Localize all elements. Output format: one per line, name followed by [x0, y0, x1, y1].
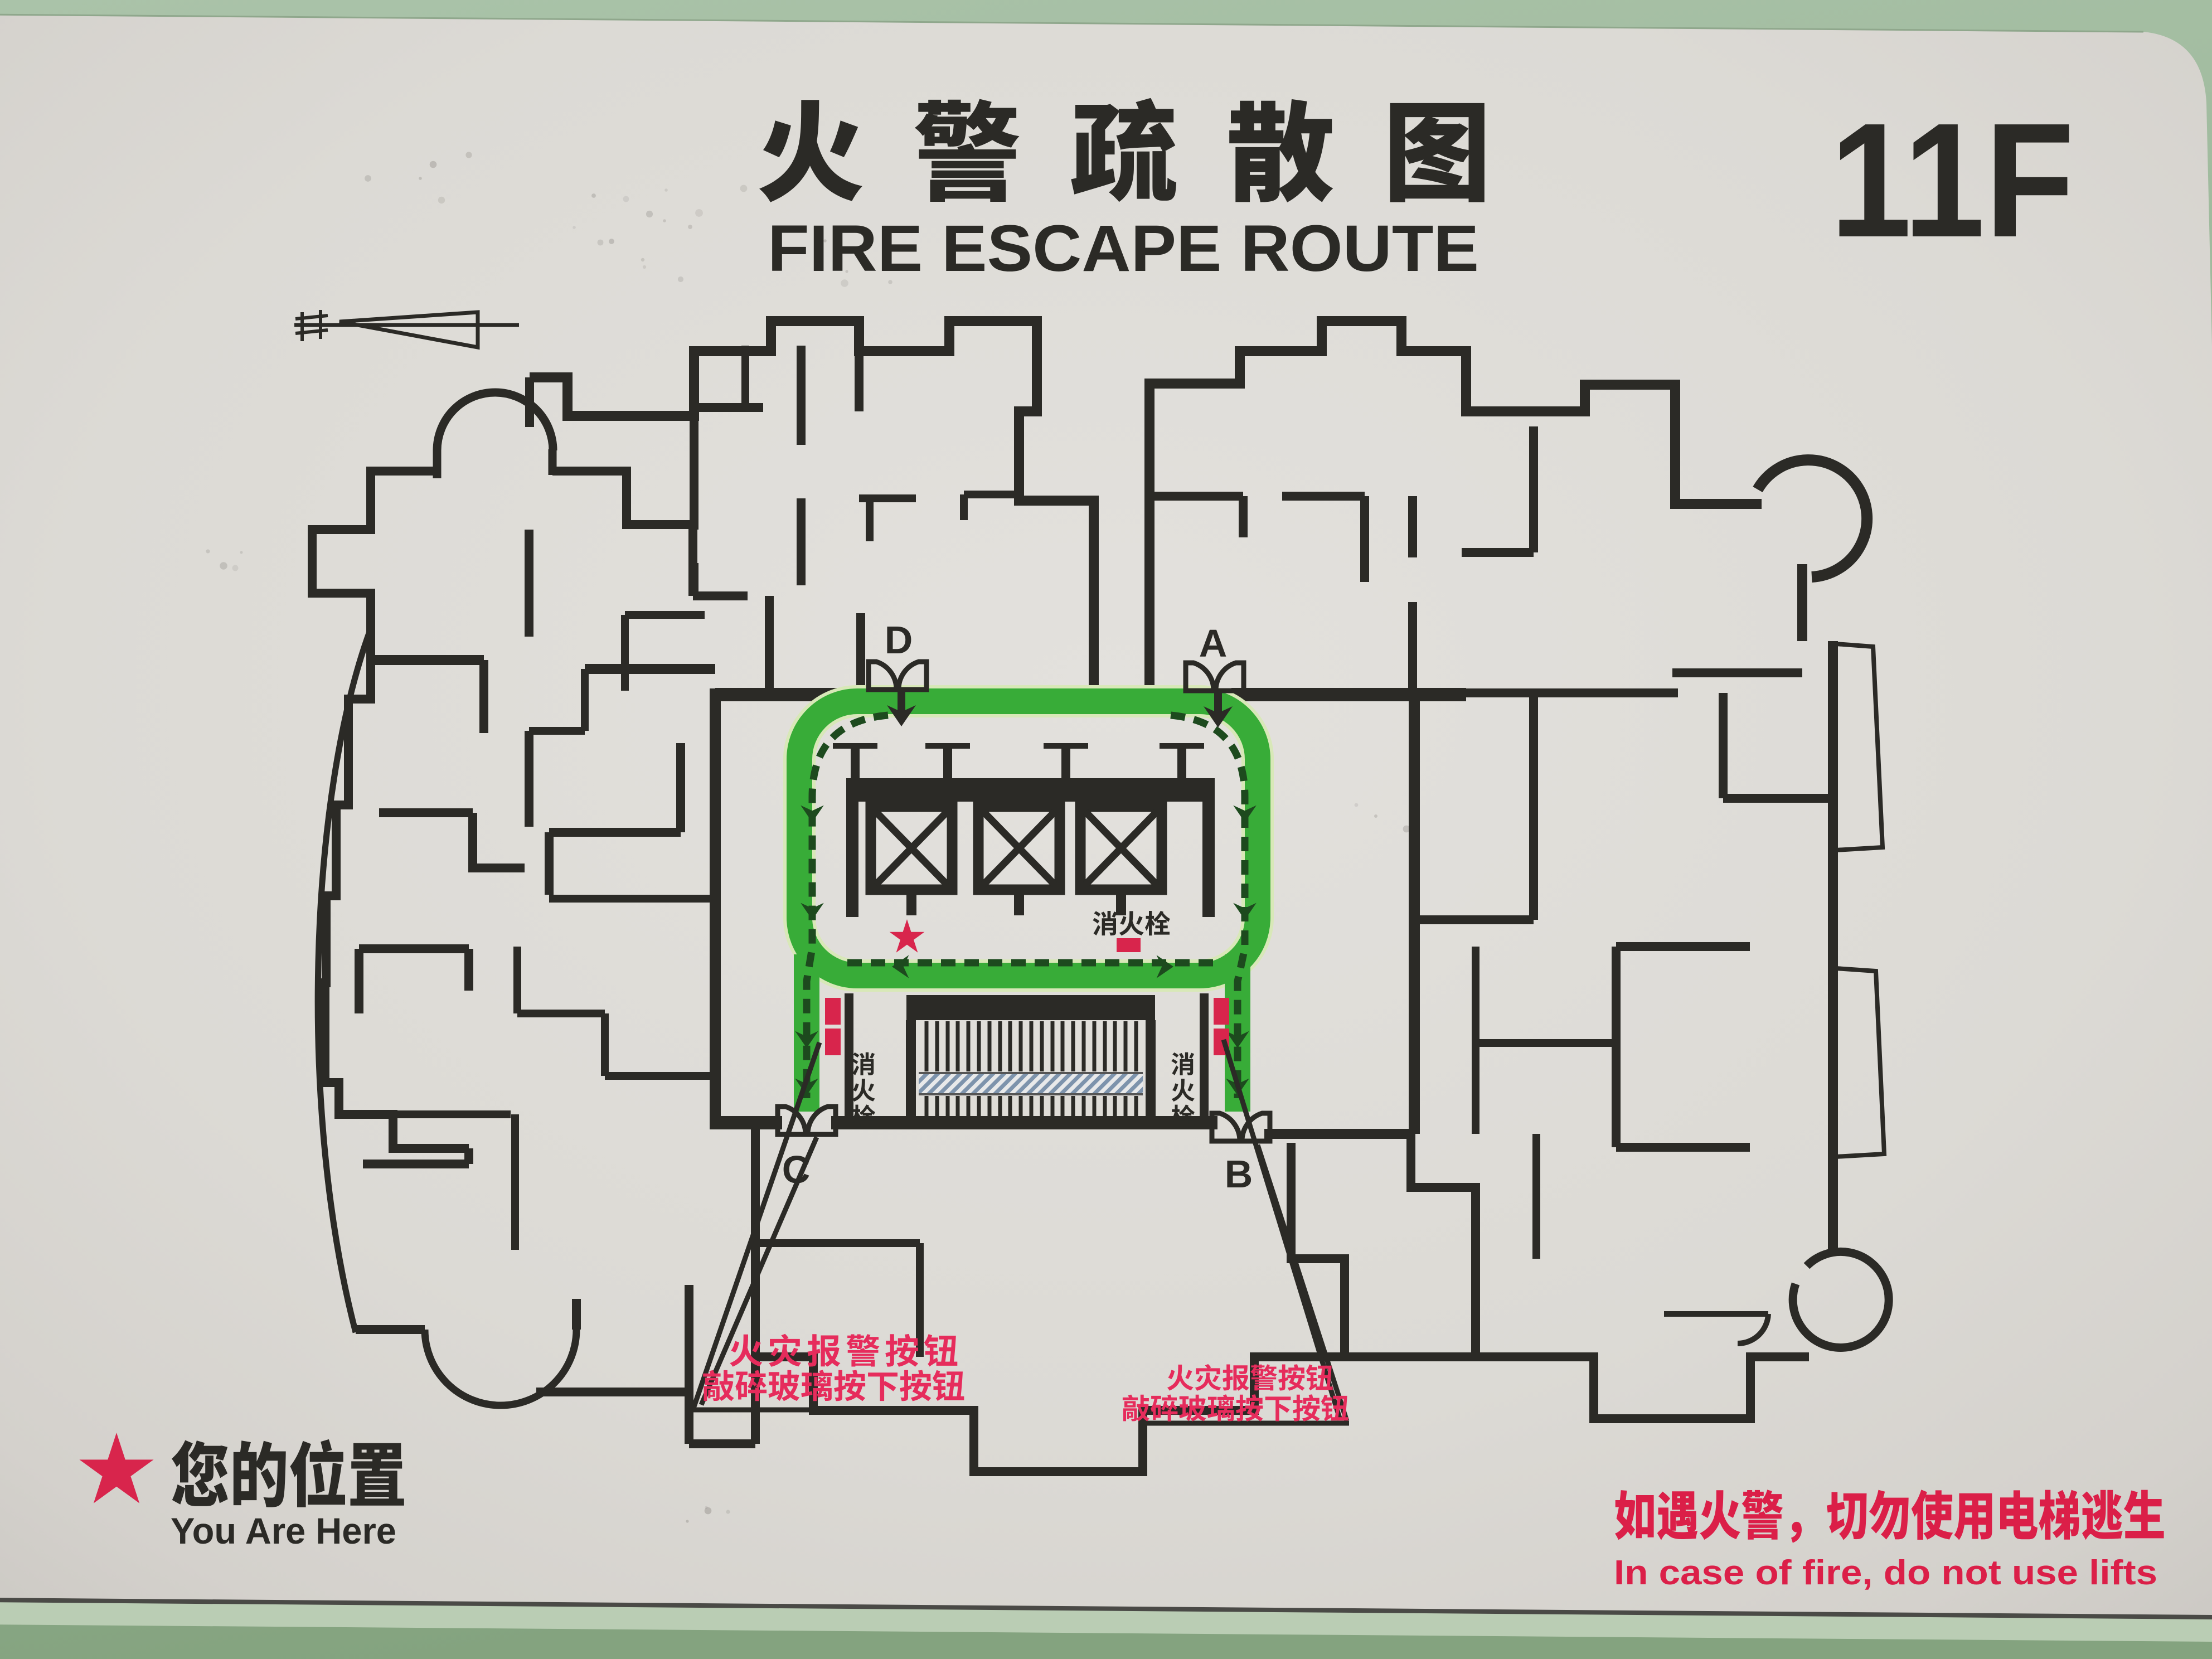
svg-text:D: D — [885, 618, 913, 662]
svg-text:B: B — [1225, 1152, 1253, 1196]
svg-text:FIRE ESCAPE ROUTE: FIRE ESCAPE ROUTE — [768, 212, 1479, 285]
svg-text:11F: 11F — [1830, 89, 2074, 271]
svg-text:You Are Here: You Are Here — [171, 1510, 396, 1551]
svg-text:A: A — [1199, 622, 1228, 665]
svg-text:In case of fire, do not use li: In case of fire, do not use lifts — [1614, 1554, 2157, 1592]
